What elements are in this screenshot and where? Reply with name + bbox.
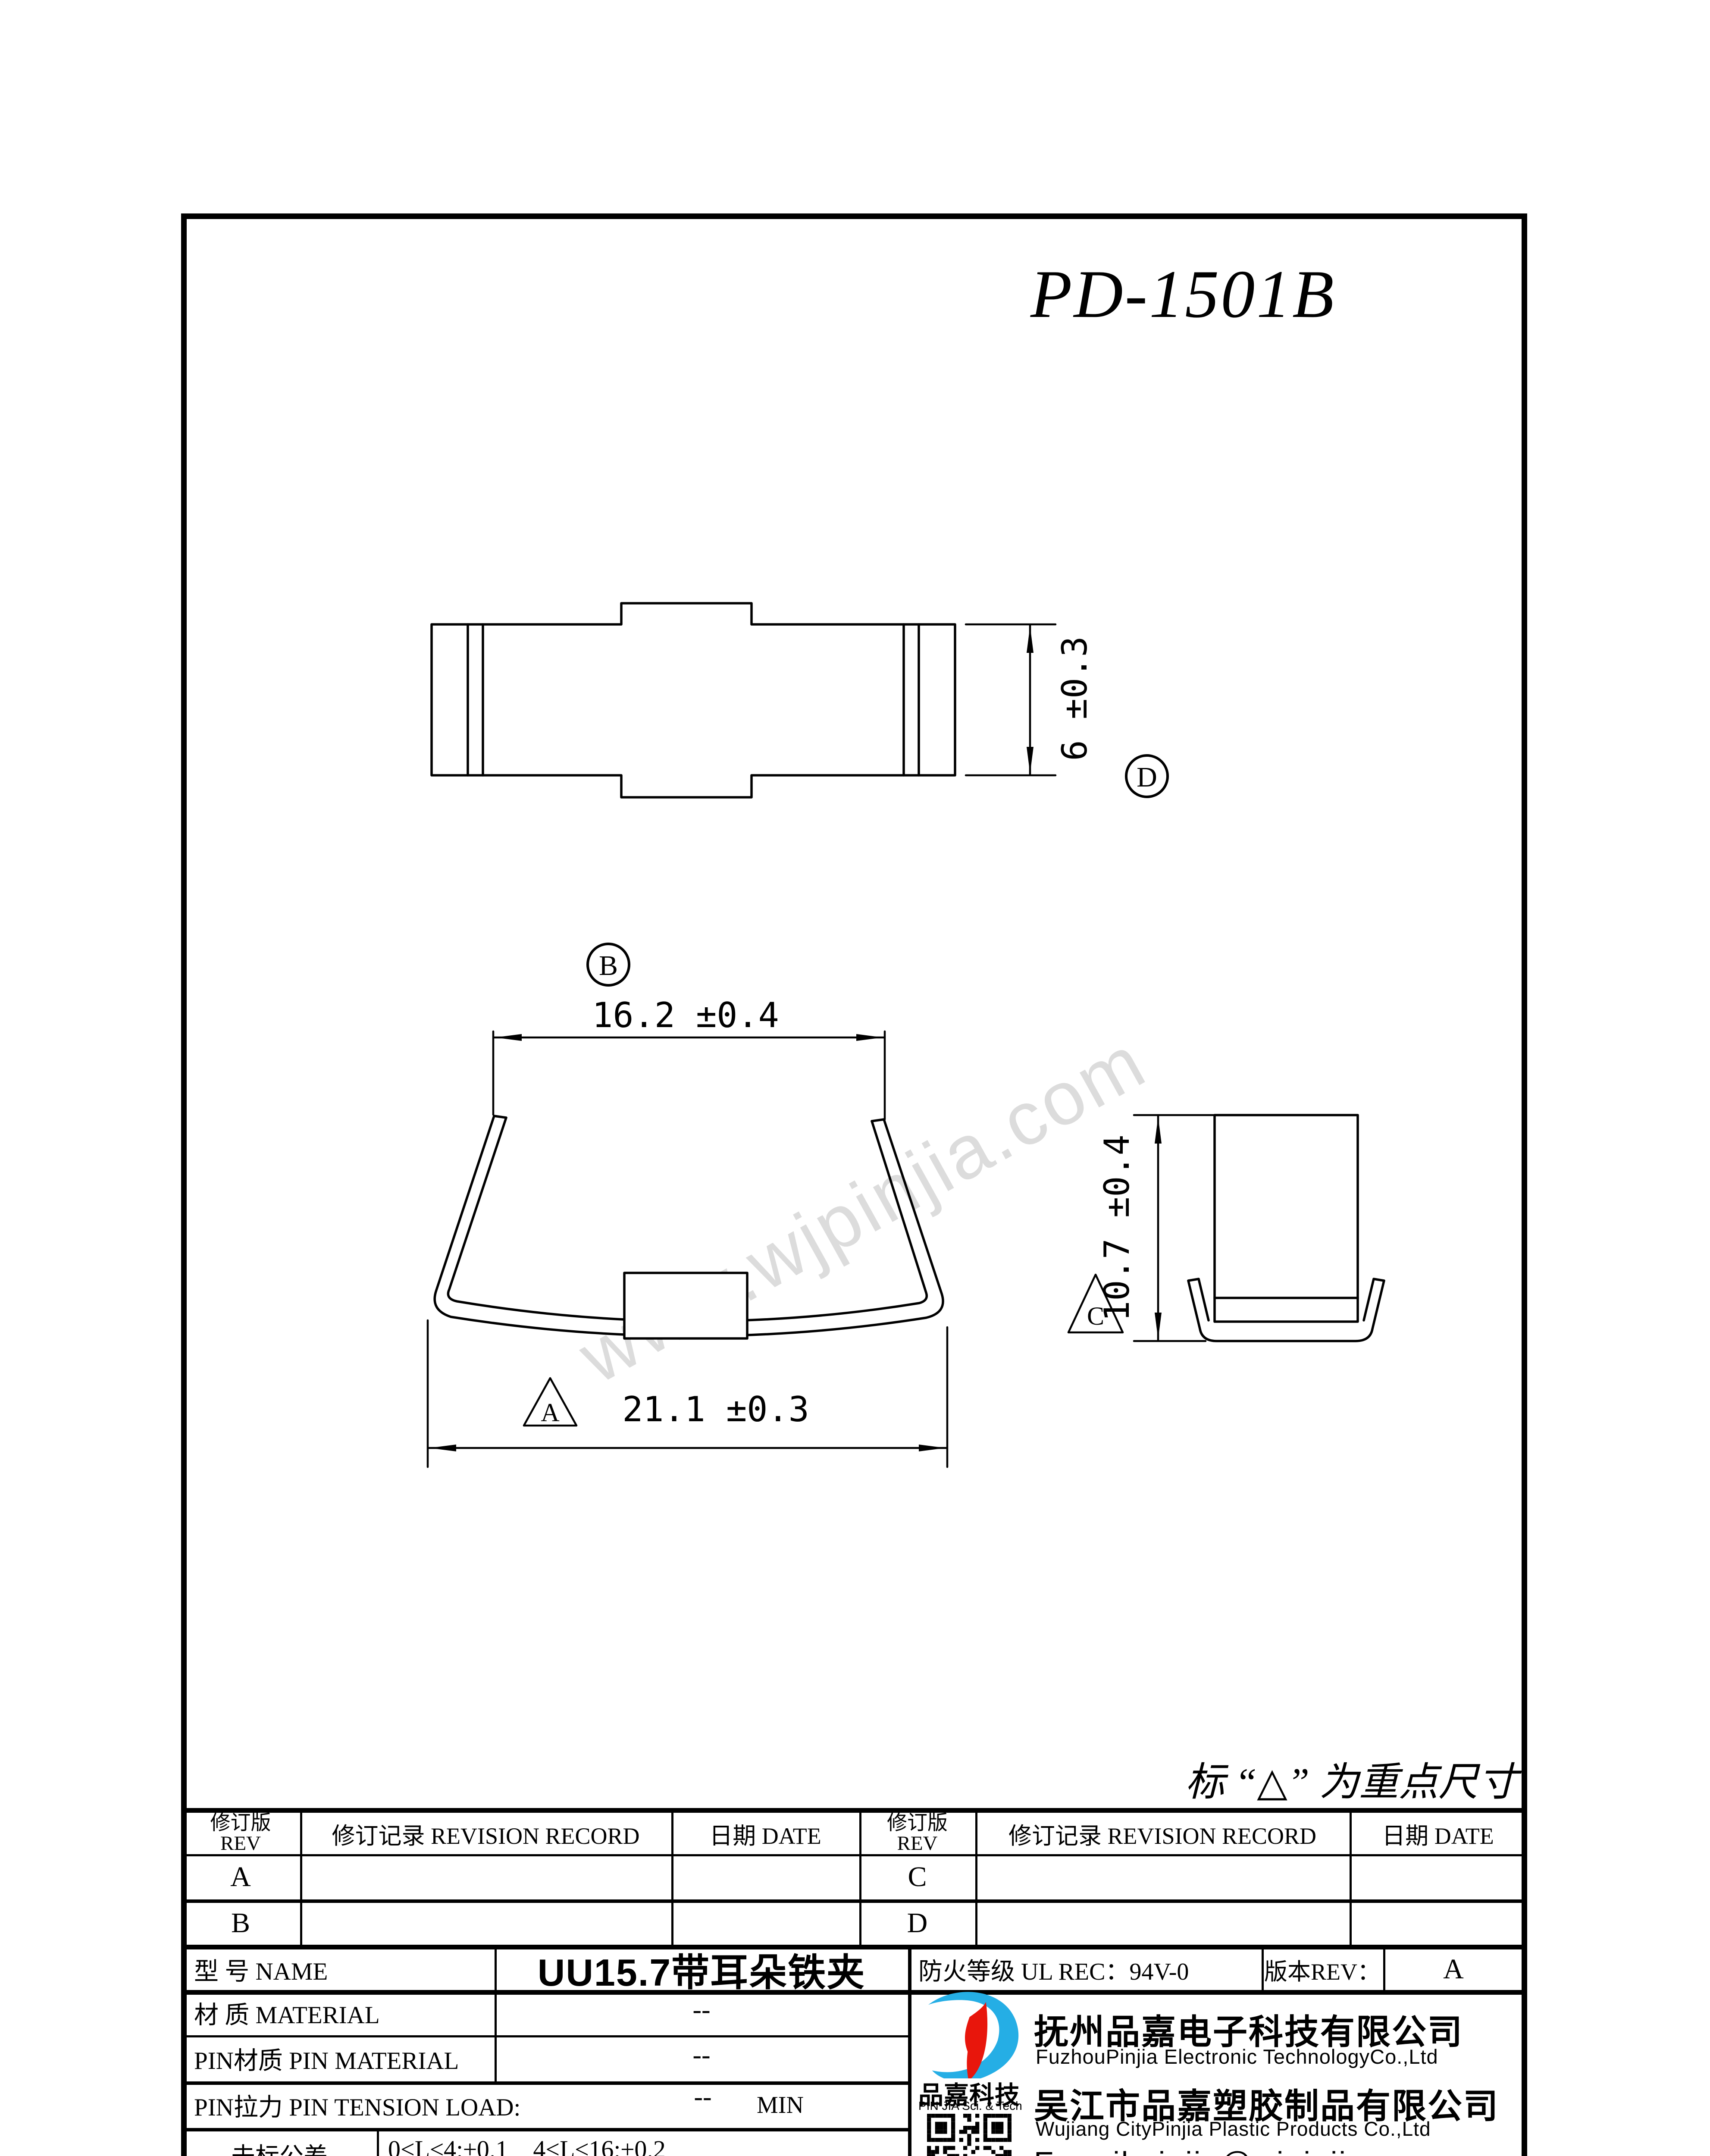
- key-c-label: C: [1087, 1302, 1104, 1330]
- rev-header-left: 修订版 REV: [183, 1813, 298, 1854]
- name-value: UU15.7带耳朵铁夹: [497, 1949, 906, 1989]
- rev-header-en: REV: [220, 1833, 261, 1854]
- company-email: E-mail:pinjia@wjpinjia.com: [1034, 2145, 1438, 2156]
- dimension-a: A 21.1 ±0.3: [428, 1320, 947, 1467]
- dim-c-text: 10.7 ±0.4: [1097, 1134, 1137, 1321]
- table-line: [181, 1899, 1527, 1903]
- material-value: --: [497, 1995, 906, 2021]
- rev-label: 版本REV：: [1264, 1949, 1381, 1989]
- tolerances-label: 未标公差 TOLERANCES: [183, 2131, 376, 2156]
- date-header-right: 日期 DATE: [1352, 1813, 1524, 1854]
- dimension-b: B 16.2 ±0.4: [493, 944, 885, 1119]
- rev-row-a: A: [183, 1856, 298, 1897]
- tolerances-cn: 未标公差: [231, 2144, 328, 2156]
- date-header-left: 日期 DATE: [673, 1813, 857, 1854]
- company-logo: [915, 1987, 1028, 2078]
- rev-header-right: 修订版 REV: [861, 1813, 973, 1854]
- material-label: 材 质 MATERIAL: [181, 1992, 504, 2034]
- table-line: [908, 1945, 911, 2156]
- cad-views: 6 ±0.3 D B 16.2 ±0.4 A 21.1 ±0.3: [181, 213, 1527, 1808]
- key-dimension-note: 标 “△” 为重点尺寸: [1104, 1750, 1518, 1807]
- rev-row-c: C: [861, 1856, 973, 1897]
- qr-code: [927, 2114, 1012, 2156]
- table-line: [181, 1854, 1527, 1856]
- dim-d-text: 6 ±0.3: [1055, 636, 1095, 761]
- record-header-right: 修订记录 REVISION RECORD: [977, 1813, 1347, 1854]
- rev-header-en: REV: [897, 1833, 938, 1854]
- pin-material-value: --: [497, 2040, 906, 2066]
- record-header-left: 修订记录 REVISION RECORD: [302, 1813, 669, 1854]
- drawing-sheet: PD-1501B www.wjpinjia.com 标 “△” 为重点尺寸 6 …: [0, 0, 1710, 2156]
- datum-d-label: D: [1137, 761, 1157, 793]
- rev-header-cn: 修订版: [210, 1813, 271, 1833]
- tension-label: PIN拉力 PIN TENSION LOAD:: [181, 2084, 711, 2126]
- company-name-en-1: FuzhouPinjia Electronic TechnologyCo.,Lt…: [1036, 2045, 1438, 2068]
- dimension-c: 10.7 ±0.4 C: [1068, 1115, 1215, 1341]
- tension-value: --: [677, 2086, 729, 2108]
- rev-value: A: [1385, 1949, 1522, 1989]
- tolerances-values: 0<L≤4:±0.1 4<L≤16:±0.2 16<L≤63:±0.3 PIN …: [388, 2131, 905, 2156]
- name-label: 型 号 NAME: [181, 1949, 504, 1989]
- rev-row-b: B: [183, 1903, 298, 1943]
- side-view-outline: [1188, 1115, 1384, 1341]
- table-line: [377, 2128, 379, 2156]
- front-view-outline: [435, 1116, 943, 1338]
- dim-b-text: 16.2 ±0.4: [592, 995, 779, 1035]
- key-a-label: A: [541, 1398, 559, 1427]
- tension-unit: MIN: [757, 2084, 843, 2126]
- ul-rating: 防火等级 UL REC：94V-0: [918, 1949, 1259, 1989]
- datum-b-label: B: [599, 950, 618, 981]
- table-line: [181, 1808, 1527, 1813]
- company-name-en-2: Wujiang CityPinjia Plastic Products Co.,…: [1036, 2117, 1431, 2140]
- pin-material-label: PIN材质 PIN MATERIAL: [181, 2037, 504, 2080]
- rev-row-d: D: [861, 1903, 973, 1943]
- dimension-d: 6 ±0.3 D: [966, 624, 1168, 797]
- rev-header-cn: 修订版: [887, 1813, 948, 1833]
- tolerance-line-1: 0<L≤4:±0.1 4<L≤16:±0.2: [388, 2137, 666, 2156]
- top-view-outline: [432, 603, 955, 797]
- logo-text-en: PIN JIA Sci. & Tech: [918, 2099, 1022, 2113]
- dim-a-text: 21.1 ±0.3: [622, 1389, 809, 1429]
- table-line: [181, 2128, 908, 2131]
